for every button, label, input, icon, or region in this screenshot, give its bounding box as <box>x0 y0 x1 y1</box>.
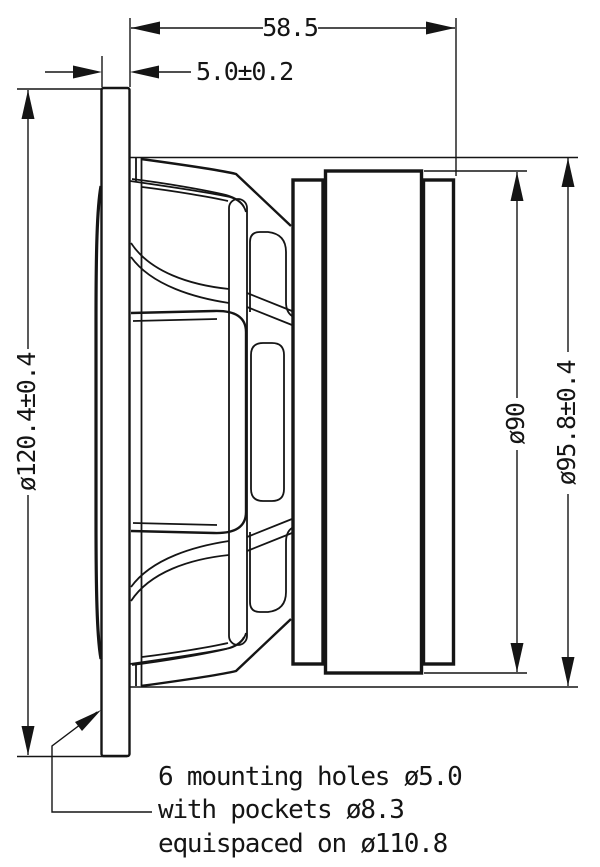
mid-window-inner-top <box>133 319 217 321</box>
mid-window-inner-bottom <box>133 523 217 525</box>
arrowhead-down <box>511 643 524 672</box>
mounting-note: 6 mounting holes ø5.0 with pockets ø8.3 … <box>158 762 462 859</box>
spoke-lower-b <box>247 519 292 537</box>
arrowhead-up <box>562 158 575 187</box>
arrowhead-up <box>22 90 35 119</box>
basket-taper-bottom <box>141 619 291 686</box>
top-window-sweep-inner <box>131 257 229 303</box>
arrowhead-left <box>130 66 159 79</box>
arrowhead-right <box>73 66 102 79</box>
dim-magnet-diameter: ø90 <box>424 171 530 673</box>
dim-body-diameter-label: ø95.8±0.4 <box>552 361 581 486</box>
arrowhead-right <box>426 22 455 35</box>
arrowhead-down <box>562 657 575 686</box>
dim-magnet-diameter-label: ø90 <box>501 403 530 445</box>
spider-band <box>229 199 247 645</box>
dim-flange-diameter: ø120.4±0.4 <box>12 89 127 757</box>
surround-lip <box>96 186 101 659</box>
arrowhead-down <box>22 726 35 755</box>
mounting-note-line1: 6 mounting holes ø5.0 <box>158 762 462 792</box>
mounting-note-line2: with pockets ø8.3 <box>158 795 404 825</box>
dim-depth-label: 58.5 <box>262 13 318 42</box>
bottom-window-sweep-inner <box>131 541 229 587</box>
dim-flange-diameter-label: ø120.4±0.4 <box>12 353 41 492</box>
dim-depth-total: 58.5 <box>130 13 456 176</box>
front-plate <box>293 180 323 664</box>
dim-flange-thickness-label: 5.0±0.2 <box>196 57 293 86</box>
neck-shape-middle <box>251 343 284 501</box>
magnet-ring <box>326 171 422 673</box>
rear-plate <box>424 180 454 664</box>
bottom-window-sweep <box>131 555 229 601</box>
leader-arrowhead <box>75 710 101 731</box>
speaker-dimension-drawing: 58.5 5.0±0.2 ø120.4±0.4 <box>0 0 600 867</box>
mounting-note-line3: equispaced on ø110.8 <box>158 829 447 859</box>
drawing-svg: 58.5 5.0±0.2 ø120.4±0.4 <box>0 0 600 867</box>
dim-body-diameter: ø95.8±0.4 <box>552 158 581 686</box>
arrowhead-up <box>511 172 524 201</box>
dim-flange-thickness: 5.0±0.2 <box>45 56 293 87</box>
arrowhead-left <box>131 22 160 35</box>
flange-outline <box>102 88 130 756</box>
spoke-upper-b <box>247 307 292 325</box>
top-window-sweep <box>131 243 229 289</box>
